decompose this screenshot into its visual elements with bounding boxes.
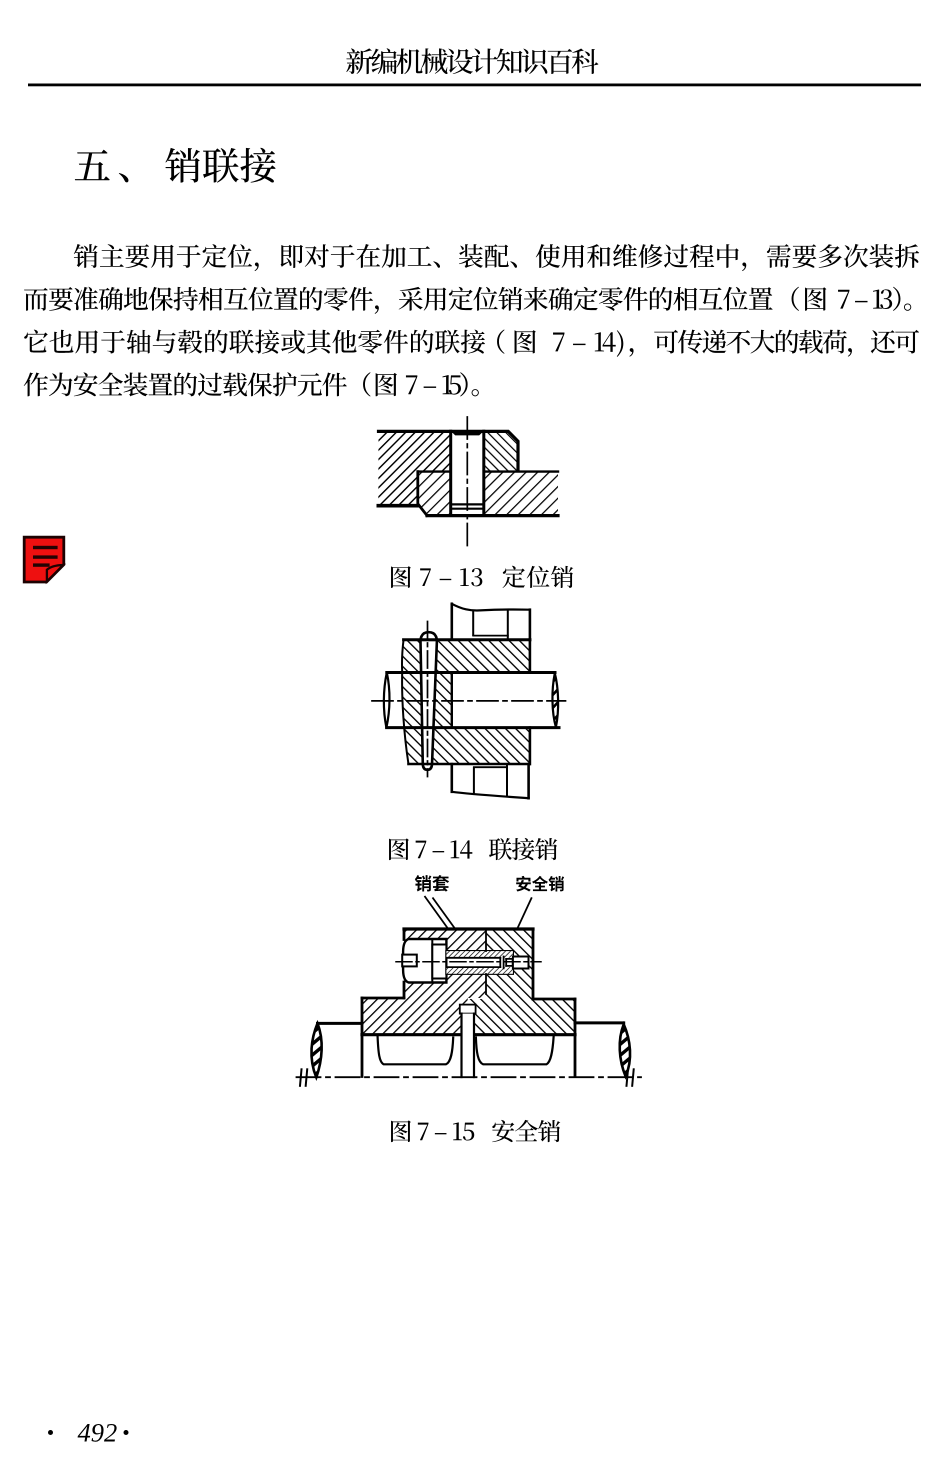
- svg-text:492: 492: [78, 1418, 118, 1448]
